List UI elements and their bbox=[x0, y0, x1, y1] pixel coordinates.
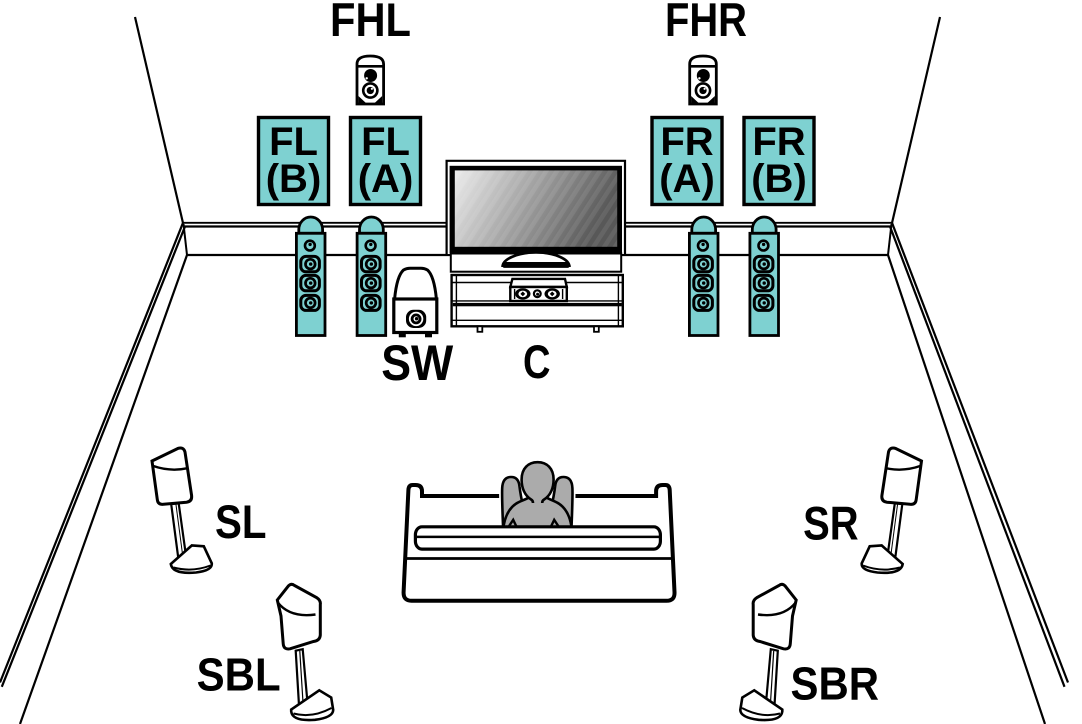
svg-text:SBL: SBL bbox=[197, 648, 281, 700]
svg-text:(A): (A) bbox=[358, 157, 414, 201]
svg-text:SW: SW bbox=[381, 335, 454, 391]
svg-text:FHL: FHL bbox=[330, 0, 411, 46]
svg-text:FHR: FHR bbox=[665, 0, 747, 46]
svg-text:(A): (A) bbox=[659, 157, 715, 201]
svg-text:SR: SR bbox=[803, 497, 859, 550]
svg-text:(B): (B) bbox=[266, 157, 322, 201]
svg-text:SBR: SBR bbox=[791, 657, 880, 709]
svg-text:C: C bbox=[523, 335, 551, 388]
svg-text:SL: SL bbox=[215, 495, 267, 548]
svg-text:(B): (B) bbox=[751, 157, 807, 201]
